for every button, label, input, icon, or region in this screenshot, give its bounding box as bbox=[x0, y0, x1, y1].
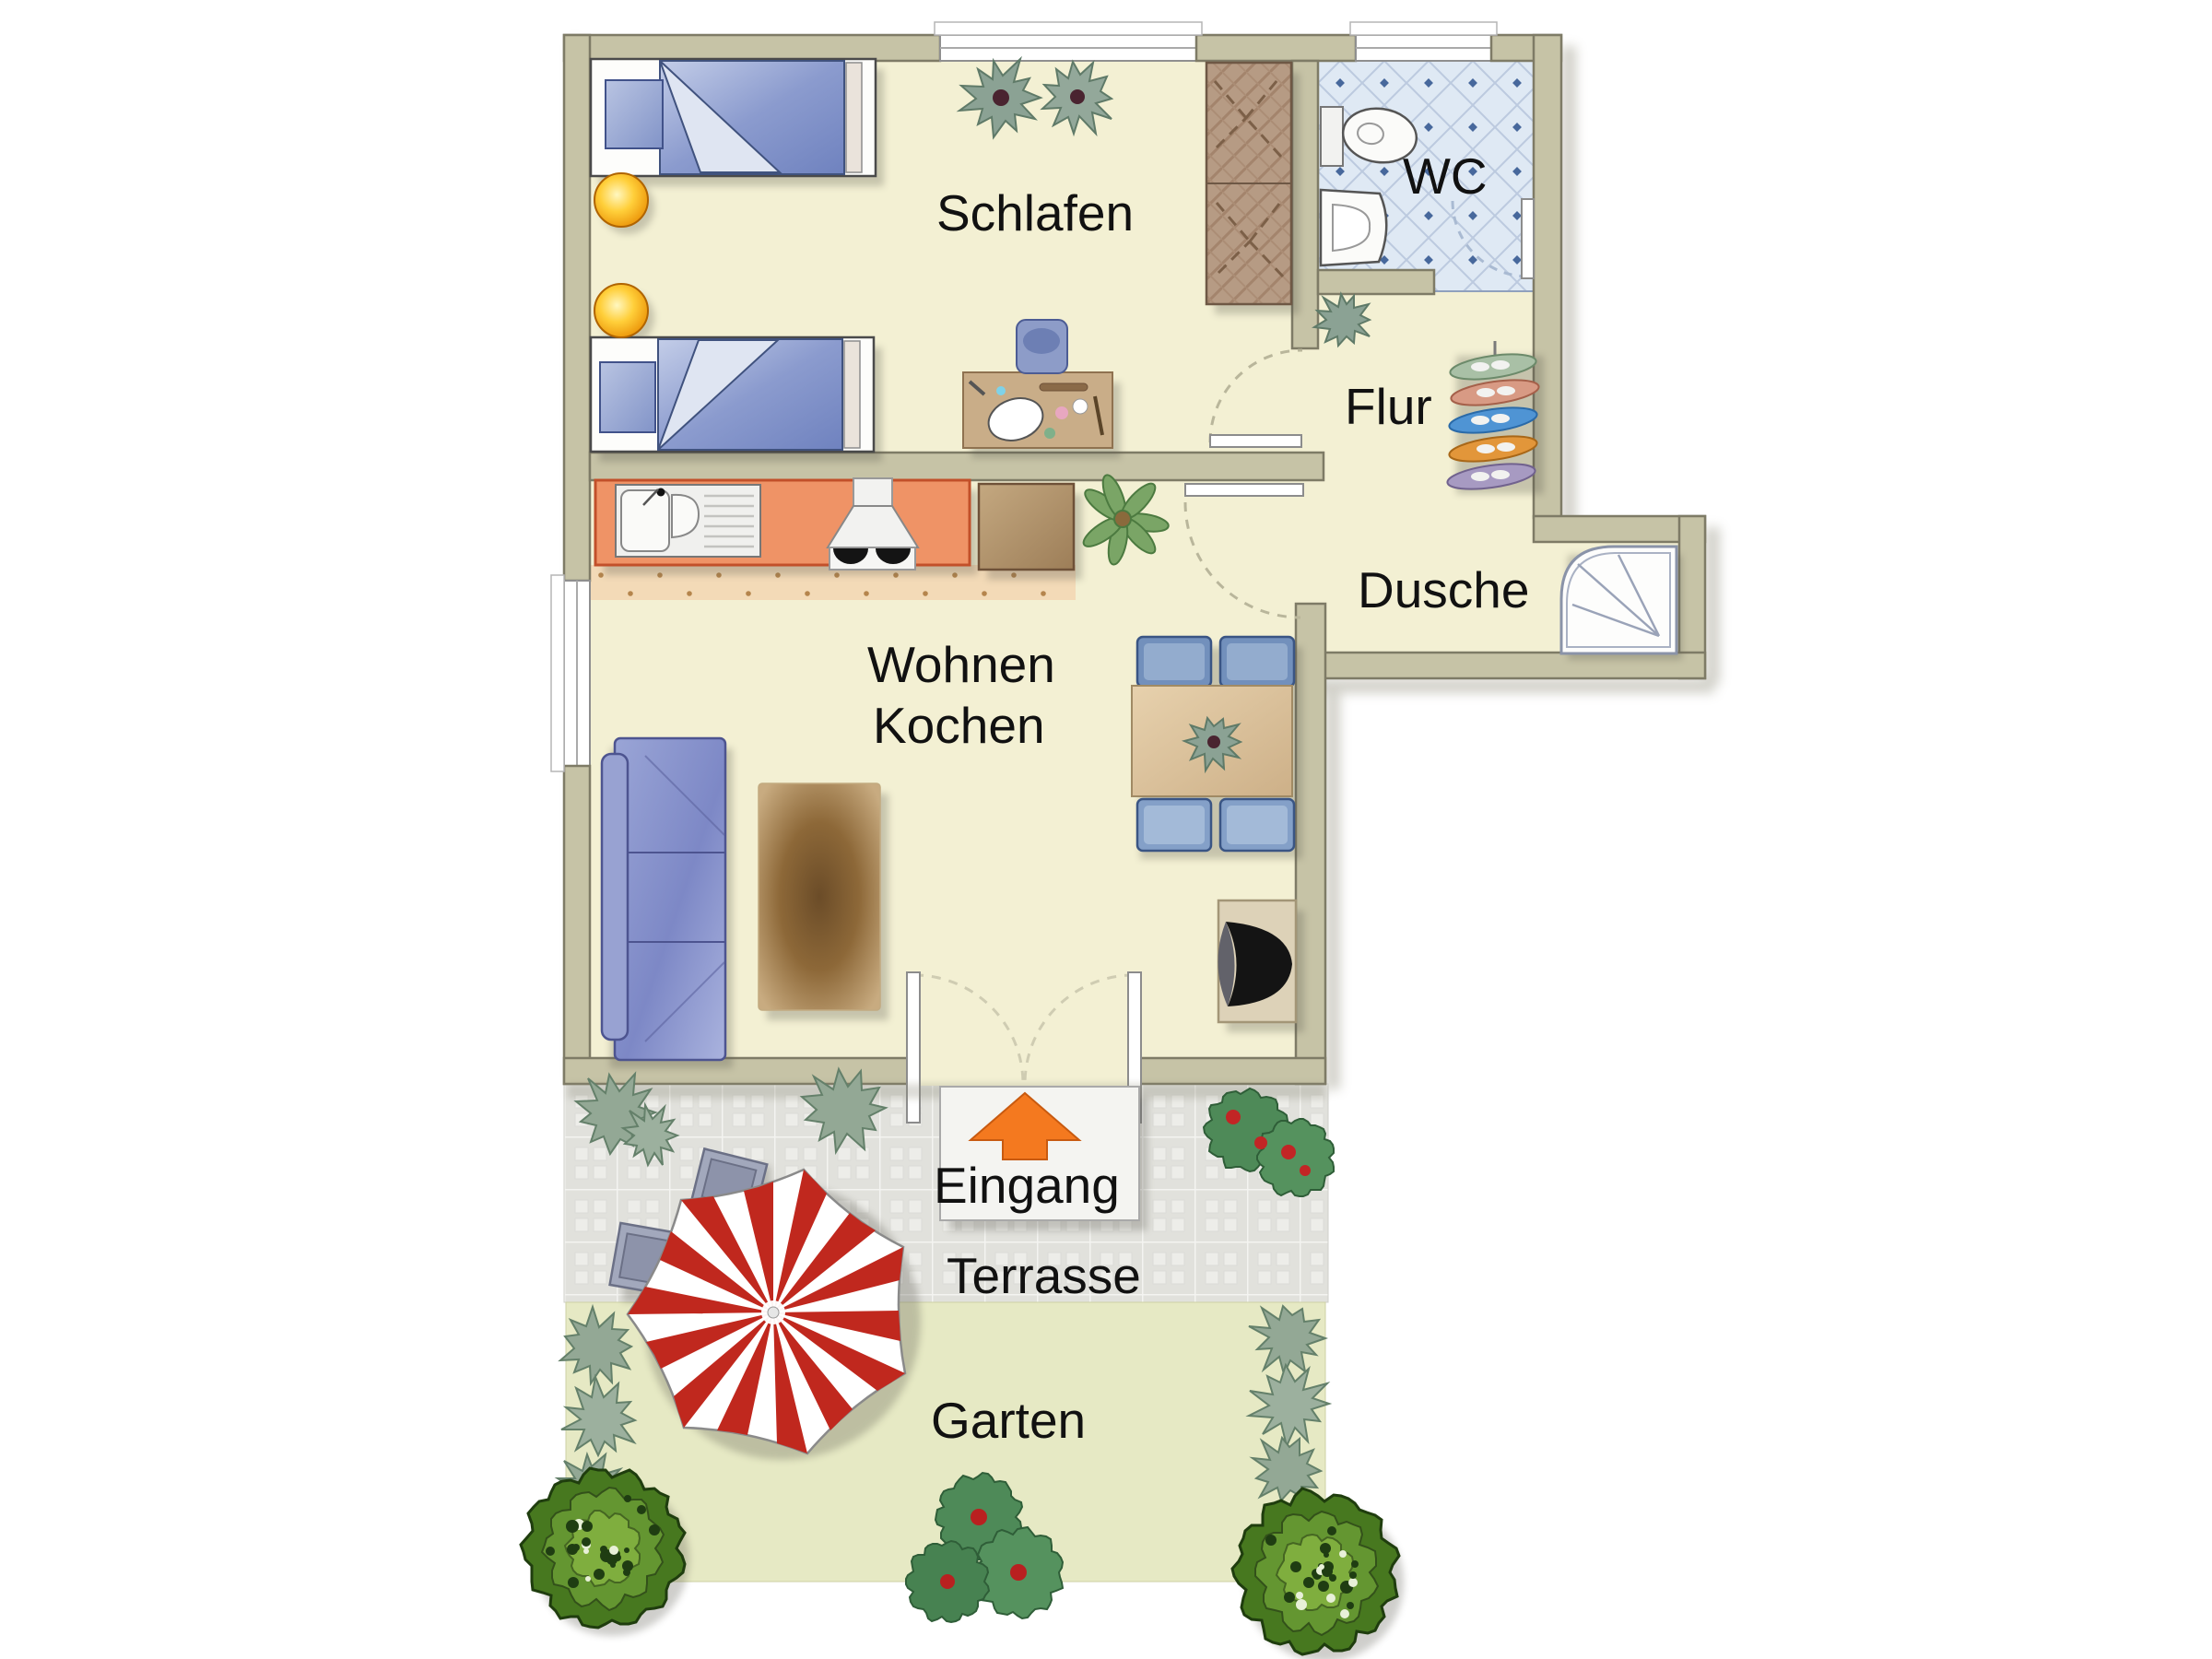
svg-text:Dusche: Dusche bbox=[1358, 561, 1529, 618]
svg-text:Flur: Flur bbox=[1345, 378, 1432, 435]
svg-text:Terrasse: Terrasse bbox=[947, 1247, 1141, 1304]
svg-text:Eingang: Eingang bbox=[934, 1157, 1120, 1214]
svg-text:WC: WC bbox=[1403, 147, 1488, 205]
svg-text:Schlafen: Schlafen bbox=[936, 184, 1134, 241]
svg-text:Wohnen: Wohnen bbox=[867, 636, 1055, 693]
svg-text:Garten: Garten bbox=[931, 1392, 1086, 1449]
svg-text:Kochen: Kochen bbox=[873, 697, 1045, 754]
